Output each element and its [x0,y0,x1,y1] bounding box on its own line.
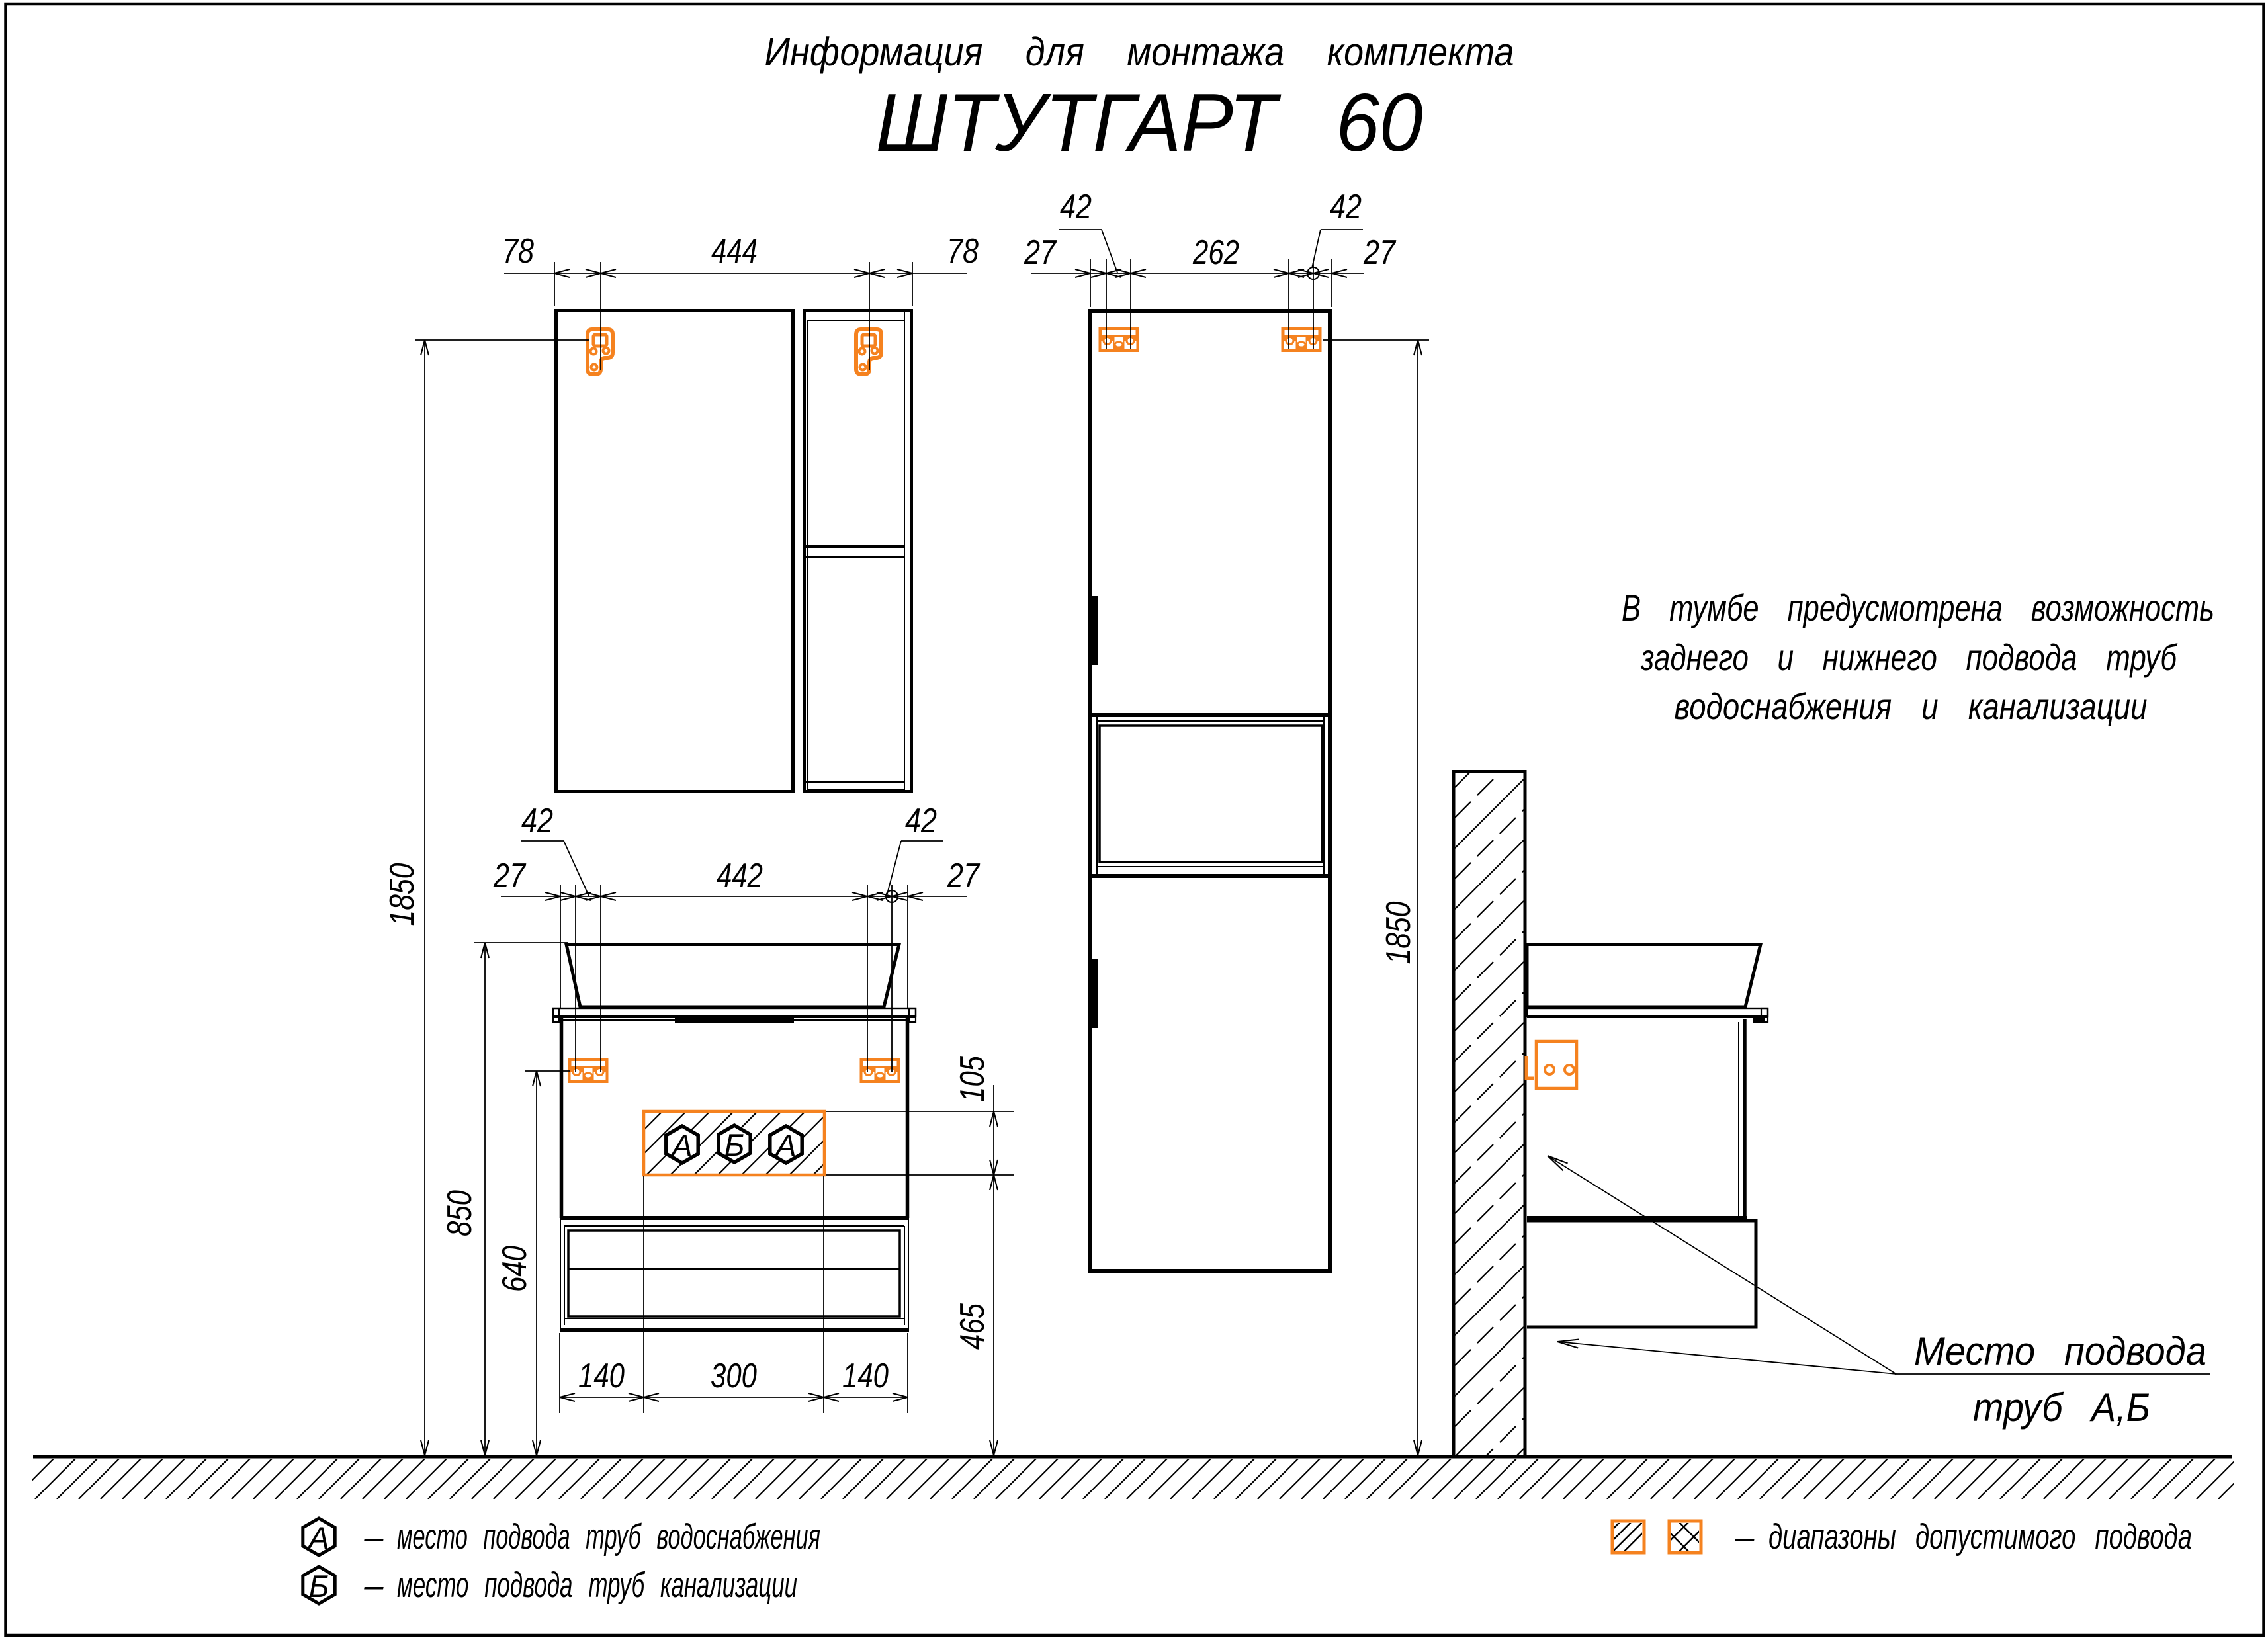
svg-text:заднего и нижнего подвода труб: заднего и нижнего подвода труб [1640,636,2178,678]
svg-text:А: А [773,1128,796,1163]
svg-text:Б: Б [309,1569,329,1604]
svg-text:300: 300 [711,1357,757,1395]
svg-text:42: 42 [1060,188,1092,226]
svg-text:465: 465 [953,1303,992,1350]
svg-text:Место подвода: Место подвода [1914,1329,2206,1373]
svg-text:Б: Б [724,1127,745,1162]
svg-text:место подвода труб канализации: место подвода труб канализации [397,1565,797,1605]
svg-text:В тумбе предусмотрена возможно: В тумбе предусмотрена возможность [1622,587,2214,628]
svg-text:ШТУТГАРТ 60: ШТУТГАРТ 60 [876,77,1423,169]
svg-text:1850: 1850 [1379,901,1418,964]
svg-text:труб А,Б: труб А,Б [1973,1385,2150,1430]
svg-text:27: 27 [1024,234,1057,272]
svg-text:105: 105 [953,1055,992,1102]
svg-text:78: 78 [947,232,979,271]
svg-text:78: 78 [502,232,534,271]
svg-text:Информация для монтажа комплек: Информация для монтажа комплекта [765,30,1514,74]
svg-text:27: 27 [947,857,981,895]
svg-text:442: 442 [717,857,763,895]
svg-text:140: 140 [578,1357,625,1395]
svg-text:42: 42 [521,802,553,840]
svg-text:42: 42 [1330,188,1362,226]
svg-text:42: 42 [905,802,937,840]
svg-text:640: 640 [496,1246,534,1292]
svg-text:27: 27 [493,857,527,895]
svg-text:А: А [306,1520,329,1555]
svg-text:диапазоны допустимого подвода: диапазоны допустимого подвода [1768,1517,2192,1557]
svg-text:–: – [364,1518,384,1557]
svg-text:850: 850 [441,1190,479,1236]
svg-text:А: А [670,1128,692,1163]
svg-text:водоснабжения и канализации: водоснабжения и канализации [1675,685,2148,727]
svg-text:262: 262 [1192,234,1239,272]
svg-text:140: 140 [842,1357,889,1395]
svg-text:–: – [1735,1518,1755,1557]
svg-text:27: 27 [1363,234,1397,272]
svg-text:место подвода труб водоснабжен: место подвода труб водоснабжения [397,1517,820,1557]
svg-text:444: 444 [711,232,758,271]
svg-text:–: – [364,1567,384,1605]
svg-text:1850: 1850 [383,863,421,926]
